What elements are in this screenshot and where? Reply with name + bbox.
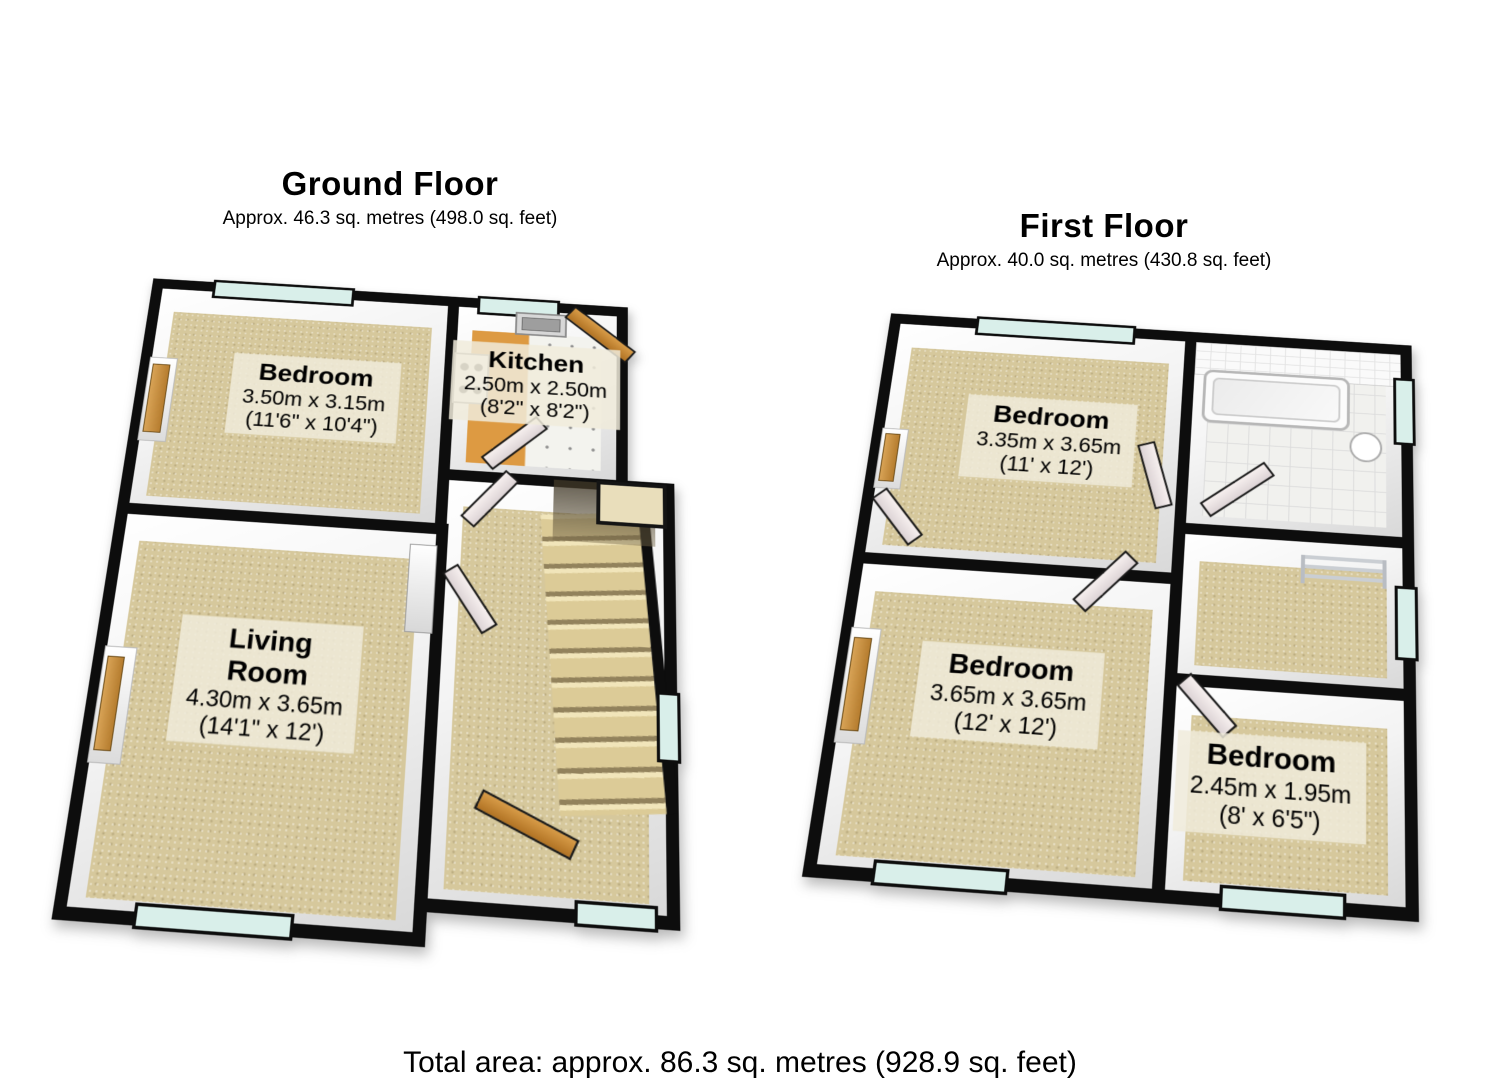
ground-floor-area-subtitle: Approx. 46.3 sq. metres (498.0 sq. feet) [140,208,640,230]
total-area-text: Total area: approx. 86.3 sq. metres (928… [0,1046,1480,1080]
kitchen-sink-basin [522,317,561,332]
towel-rail-icon [1301,555,1387,589]
room-label-gf-bedroom: Bedroom 3.50m x 3.15m (11'6" x 10'4") [224,353,401,444]
first-floor-plan: Bedroom 3.35m x 3.65m (11' x 12') Bedroo… [802,313,1419,922]
room-label-ff-bedroom2: Bedroom 3.65m x 3.65m (12' x 12') [910,641,1105,749]
room-name: Living Room [199,621,338,693]
first-floor-title: First Floor [854,207,1354,245]
staircase [541,513,679,816]
room-label-kitchen: Kitchen 2.50m x 2.50m (8'2" x 8'2") [449,340,621,430]
ground-floor-plan: Bedroom 3.50m x 3.15m (11'6" x 10'4") Ki… [51,278,680,966]
kitchen-sink-icon [515,312,567,338]
gf-hall-room [412,469,681,931]
room-label-ff-bedroom3: Bedroom 2.45m x 1.95m (8' x 6'5") [1173,730,1367,844]
living-radiator-right [404,544,438,634]
staircase-landing [596,481,667,529]
first-floor-area-subtitle: Approx. 40.0 sq. metres (430.8 sq. feet) [854,250,1354,272]
ff-bathroom-window [1393,378,1416,446]
ff-bedroom1-window [975,316,1137,345]
room-label-living-room: Living Room 4.30m x 3.65m (14'1" x 12') [166,614,364,754]
gf-bedroom-window [212,280,356,307]
ground-floor-header: Ground Floor Approx. 46.3 sq. metres (49… [140,165,640,230]
room-label-ff-bedroom1: Bedroom 3.35m x 3.65m (11' x 12') [958,394,1138,487]
bathtub-basin [1211,377,1340,423]
ground-floor-title: Ground Floor [140,165,640,203]
ff-bathroom-room [1174,332,1415,549]
bathtub-icon [1201,369,1350,431]
gf-hall-side-window [656,691,681,764]
gf-hall-bottom-window [574,900,658,933]
ff-landing-window [1395,586,1419,662]
first-floor-header: First Floor Approx. 40.0 sq. metres (430… [854,207,1354,272]
